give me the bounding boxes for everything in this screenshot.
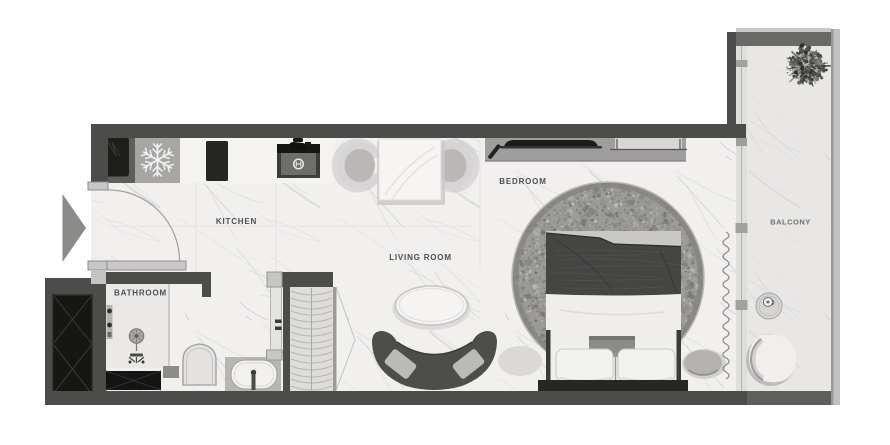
svg-text:BEDROOM: BEDROOM bbox=[499, 177, 546, 186]
svg-text:KITCHEN: KITCHEN bbox=[216, 217, 257, 226]
svg-text:BALCONY: BALCONY bbox=[770, 218, 811, 227]
svg-text:LIVING ROOM: LIVING ROOM bbox=[389, 253, 452, 262]
svg-text:BATHROOM: BATHROOM bbox=[114, 289, 167, 298]
